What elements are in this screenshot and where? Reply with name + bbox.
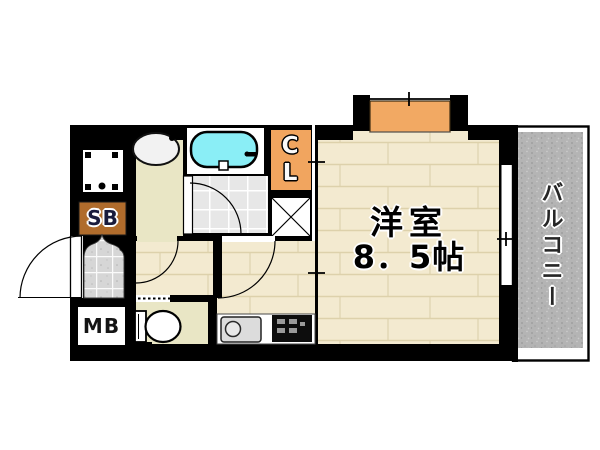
bathtub bbox=[187, 128, 264, 174]
balcony-label: バルコニー bbox=[516, 140, 584, 352]
closet-label: CL bbox=[268, 127, 312, 193]
window-bay bbox=[370, 101, 450, 132]
main-room-size: 8．5帖 bbox=[353, 241, 466, 275]
main-room-top-wall-right bbox=[468, 125, 499, 140]
shaft-x-box bbox=[271, 197, 311, 237]
wall-gap bbox=[312, 125, 315, 241]
main-room-top-wall-left bbox=[318, 125, 353, 140]
shoe-box-label: SB bbox=[79, 201, 127, 236]
tub-drain bbox=[219, 161, 228, 170]
kitchen-counter bbox=[217, 314, 315, 344]
kitchen-door-opening bbox=[222, 236, 275, 242]
main-room-name: 洋室 bbox=[370, 206, 448, 241]
toilet-room bbox=[135, 295, 217, 344]
toilet bbox=[135, 311, 181, 343]
meter-box-label: MB bbox=[77, 306, 126, 346]
sink-faucet bbox=[226, 322, 241, 337]
wash-basin bbox=[133, 133, 179, 165]
vanity-door-opening bbox=[137, 236, 177, 242]
bathroom-floor bbox=[187, 176, 268, 233]
stove bbox=[272, 315, 312, 342]
washing-machine-pan bbox=[83, 150, 123, 192]
main-room-label: 洋室 8．5帖 bbox=[318, 196, 500, 284]
floor-plan: 洋室 8．5帖 バルコニー CL SB MB bbox=[0, 0, 600, 450]
